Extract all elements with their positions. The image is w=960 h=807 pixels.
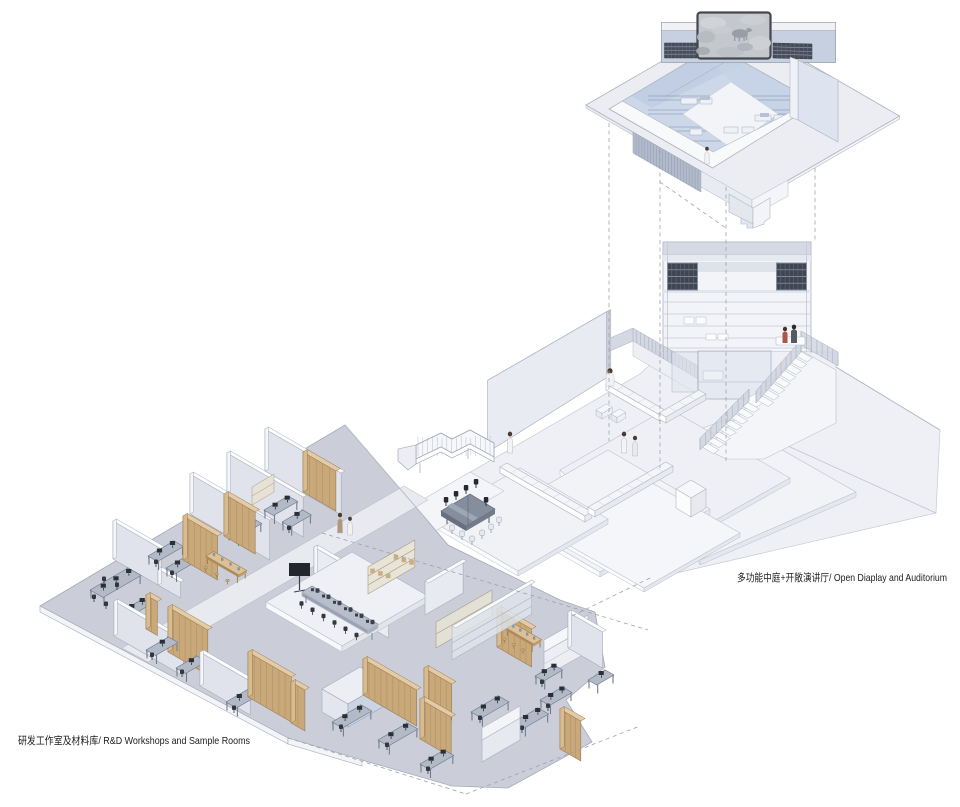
svg-text:研发工作室及材料库/ R&D Workshops and S: 研发工作室及材料库/ R&D Workshops and Sample Room… (18, 734, 250, 747)
svg-text:多功能中庭+开敞演讲厅/ Open Diaplay and: 多功能中庭+开敞演讲厅/ Open Diaplay and Auditorium (737, 571, 947, 584)
